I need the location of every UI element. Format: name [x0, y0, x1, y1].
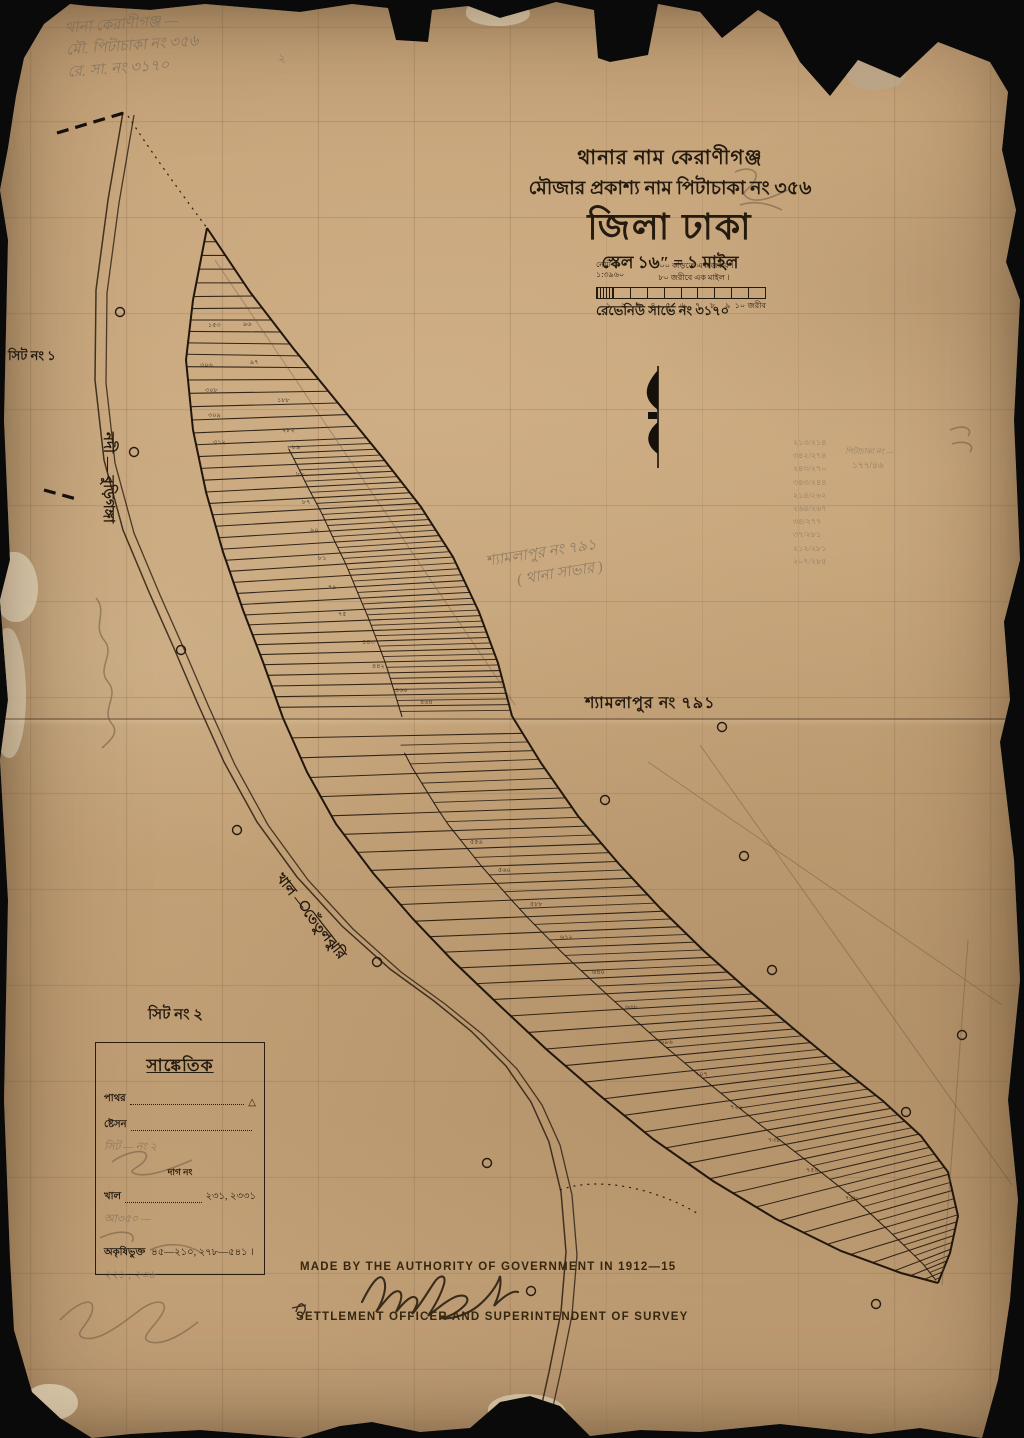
plot-number: ৪৪২ — [372, 661, 385, 672]
legend-value: ২৩১, ২৩৩১ — [206, 1189, 257, 1206]
pencil-fraction: ২৬৪/২৬৭ — [793, 504, 826, 513]
legend-label: অকৃষিভুক্ত — [104, 1245, 145, 1262]
pencil-scribble — [735, 169, 788, 200]
plot-number: ৮১ — [318, 553, 326, 564]
plot-subdivision-line — [338, 541, 443, 548]
plot-division-line — [260, 648, 492, 654]
plot-division-line — [192, 308, 262, 309]
plot-number: ৪৬০ — [395, 685, 408, 696]
plot-number: ৩০৬ — [200, 360, 213, 371]
plot-number: ৬৬৮ — [625, 1002, 638, 1013]
plot-number: ৬৯৬ — [660, 1037, 673, 1048]
plot-division-line — [310, 769, 545, 778]
scale-note-2: ৮০ জরীবে এক মাইল । — [622, 272, 766, 284]
officer-line: SETTLEMENT OFFICER AND SUPERINTENDENT OF… — [296, 1311, 688, 1323]
scale-notes: ১০০ কড়িতে এক জরীব । ৮০ জরীবে এক মাইল । — [622, 260, 766, 284]
signature — [362, 1276, 518, 1318]
plot-subdivision-line — [935, 1277, 940, 1279]
plot-division-line — [199, 449, 376, 456]
scale-unit-label: জরীব — [745, 300, 766, 313]
survey-station-circle — [301, 902, 310, 911]
scale-bar — [596, 287, 766, 299]
plot-subdivision-line — [475, 853, 610, 858]
plot-division-line — [344, 826, 587, 834]
plot-number: ৫৮৮ — [530, 899, 543, 910]
survey-station-circle — [483, 1159, 492, 1168]
plot-number: ৮৭ — [302, 497, 310, 508]
plot-subdivision-line — [353, 575, 461, 581]
pencil-scribble — [96, 598, 115, 748]
scale-bar-cell — [597, 288, 614, 298]
plot-division-line — [222, 536, 439, 550]
plot-division-line — [292, 733, 523, 738]
plot-division-line — [415, 911, 663, 921]
plot-division-line — [386, 878, 633, 887]
survey-station-circle — [373, 958, 382, 967]
plot-division-line — [779, 1174, 948, 1220]
plot-subdivision-line — [863, 1182, 950, 1206]
plot-strip-edge — [186, 228, 283, 718]
plot-subdivision-line — [813, 1141, 925, 1166]
pencil-fraction: ২১৩/২১৪ — [793, 438, 826, 447]
survey-station-circle — [768, 966, 777, 975]
scale-bar-cell — [715, 288, 732, 298]
plot-division-line — [644, 1095, 876, 1131]
pencil-line: মৌ. পিটাচাকা নং ৩৫৬ — [65, 31, 199, 62]
title-block: থানার নাম কেরাণীগঞ্জ মৌজার প্রকাশ্য নাম … — [520, 146, 820, 273]
plot-subdivision-line — [317, 498, 415, 503]
river-bank-line — [95, 112, 566, 1408]
sheet-1-label: সিট নং ১ — [8, 347, 56, 368]
pencil-fraction: ২১২/২৮১ — [793, 544, 826, 553]
legend-box: সাঙ্কেতিক পাথর △ ষ্টেসন সিট — নং ২ দাগ ন… — [95, 1042, 265, 1275]
scale-bar-cell — [732, 288, 749, 298]
plot-number: ১৮৮ — [277, 395, 290, 406]
plot-division-line — [275, 693, 506, 696]
neighbor-mouza-label: শ্যামলাপুর নং ৭৯১ — [585, 690, 715, 717]
plot-strip-edge — [283, 718, 938, 1283]
plot-subdivision-line — [847, 1167, 944, 1193]
north-arrow-flag — [648, 422, 658, 454]
for-mark — [292, 1304, 306, 1318]
plot-subdivision-line — [311, 487, 406, 492]
legend-value: ৪৫—২১০, ২৭৮—৫৪১ । — [151, 1245, 254, 1262]
plot-number: ৮৯ — [292, 442, 300, 453]
plot-subdivision-line — [534, 919, 671, 925]
plot-division-line — [253, 627, 485, 635]
legend-row-khal: খাল ২৩১, ২৩৩১ — [104, 1189, 256, 1206]
plot-strip-edge — [207, 228, 512, 716]
plot-subdivision-line — [305, 477, 397, 482]
survey-station-circle — [902, 1108, 911, 1117]
scale-line: স্কেল ১৬″ = ১ মাইল — [520, 252, 820, 273]
cadastral-map-drawing — [0, 0, 1024, 1438]
survey-station-circle — [177, 646, 186, 655]
pencil-fraction-header: পিটাচাকা নং — — [845, 446, 893, 459]
plot-division-line — [733, 1147, 930, 1193]
plot-division-line — [688, 1121, 905, 1163]
torn-patch — [26, 1384, 78, 1420]
survey-station-circle — [958, 1031, 967, 1040]
torn-patch — [0, 552, 38, 622]
district-line: জিলা ঢাকা — [520, 205, 820, 250]
plot-strip-edge — [512, 716, 958, 1283]
plot-subdivision-line — [915, 1242, 953, 1255]
plot-number: ২৮২ — [282, 425, 295, 436]
dashed-boundary-mark — [57, 112, 127, 133]
pencil-note-topleft: থানা কেরাণীগঞ্জ — মৌ. পিটাচাকা নং ৩৫৬ রে… — [64, 9, 201, 83]
plot-subdivision-line — [322, 509, 422, 515]
plot-division-line — [194, 426, 357, 433]
plot-division-line — [803, 1191, 952, 1233]
scanned-map-photo: থানার নাম কেরাণীগঞ্জ মৌজার প্রকাশ্য নাম … — [0, 0, 1024, 1438]
plot-division-line — [188, 379, 319, 380]
scale-bar-cell — [665, 288, 682, 298]
plot-number: ৭৩৮ — [768, 1135, 781, 1146]
plot-subdivision-line — [758, 1102, 884, 1123]
pencil-fraction: ২০৭/২৮৫ — [793, 557, 826, 566]
plot-division-line — [241, 592, 470, 604]
legend-label: পাথর — [104, 1091, 126, 1108]
tick: ৭ — [685, 300, 700, 313]
plot-number: ৭৫৪ — [806, 1165, 819, 1176]
plot-number: ৭৫ — [338, 609, 346, 620]
plot-division-line — [827, 1207, 956, 1245]
plot-subdivision-line — [343, 552, 449, 559]
plot-division-line — [493, 987, 744, 1000]
pencil-line: থানা কেরাণীগঞ্জ — — [64, 9, 198, 40]
scale-bar-cell — [749, 288, 765, 298]
plot-subdivision-line — [387, 665, 499, 667]
legend-row-stone: পাথর △ — [104, 1091, 256, 1108]
pencil-fraction: ৩৭/২৮১ — [793, 530, 826, 539]
plot-division-line — [230, 557, 453, 571]
torn-patch — [0, 628, 26, 758]
plot-number: ৯০ — [310, 525, 318, 536]
plot-subdivision-line — [924, 1255, 949, 1265]
pencil-scribble — [740, 203, 782, 210]
plot-division-line — [400, 895, 647, 905]
plot-division-line — [850, 1222, 956, 1255]
plot-division-line — [191, 403, 338, 407]
plot-subdivision-line — [362, 598, 472, 604]
scale-ticks: ১ ২ ৩ ৪ ৫ ৬ ৭ ৮ ৯ ১০ জরীব — [596, 300, 766, 313]
plot-subdivision-line — [401, 742, 528, 745]
pencil-scribble — [112, 1152, 192, 1175]
scale-bar-cell — [648, 288, 665, 298]
plot-division-line — [895, 1249, 951, 1271]
plot-division-line — [873, 1235, 954, 1262]
legend-row-nonagri: অকৃষিভুক্ত ৪৫—২১০, ২৭৮—৫৪১ । — [104, 1245, 256, 1262]
tick: ৮ — [700, 300, 715, 313]
pencil-scribble — [60, 1302, 198, 1343]
plot-subdivision-line — [333, 530, 436, 536]
plot-subdivision-line — [598, 979, 736, 986]
pencil-line: ( থানা সাভার ) — [515, 556, 604, 592]
plot-subdivision-line — [348, 563, 456, 570]
pencil-construction-line — [648, 762, 1002, 1005]
plot-number: ৫৬০ — [498, 865, 511, 876]
plot-number: ৯৭ — [250, 357, 258, 368]
tick: ৫ — [656, 300, 671, 313]
plot-division-line — [245, 604, 475, 615]
plot-subdivision-line — [795, 1128, 912, 1152]
pencil-fraction: ৩৪৩/২৪৪ — [793, 478, 826, 487]
pencil-fraction-column: ২১৩/২১৪৩৪২/২৭৪২৪৩/২৭০৩৪৩/২৪৪২১৪/২৬২২৬৪/২… — [793, 438, 826, 570]
plot-division-line — [233, 569, 458, 583]
plot-division-line — [249, 616, 481, 625]
made-by-line: MADE BY THE AUTHORITY OF GOVERNMENT IN 1… — [300, 1261, 676, 1273]
plot-subdivision-line — [446, 817, 579, 821]
plot-division-line — [272, 682, 503, 686]
plot-division-line — [371, 861, 617, 870]
plot-subdivision-line — [358, 586, 467, 592]
legend-dag-no: দাগ নং — [104, 1165, 256, 1180]
plot-subdivision-line — [397, 699, 508, 700]
plot-number: ৬৪০ — [592, 967, 605, 978]
river-name-label-upper: নদী — বুড়িগঙ্গা — [95, 432, 120, 523]
river-name-label-lower: খাল — তেঁতুলঝুরি — [269, 868, 352, 965]
plot-subdivision-line — [294, 455, 381, 459]
plot-number: ৩০৯ — [208, 410, 221, 421]
legend-pencil-sheet: সিট — নং ২ — [104, 1138, 256, 1157]
dotted-traverse-line — [560, 1184, 700, 1215]
plot-subdivision-line — [410, 759, 538, 764]
plot-division-line — [226, 546, 446, 560]
revenue-survey-number: রেভেনিউ সার্ভে নং ৩১৭০ — [596, 302, 729, 323]
survey-station-circle — [718, 723, 727, 732]
survey-station-circle — [130, 448, 139, 457]
plot-subdivision-line — [371, 621, 482, 625]
plot-subdivision-line — [379, 643, 491, 646]
pencil-stray-mark: ২ — [278, 50, 286, 70]
scale-rf: নোট ১:৩৯৬০ — [596, 260, 618, 281]
tick: ১ — [596, 300, 611, 313]
plot-number: ৩১২ — [213, 437, 226, 448]
plot-division-line — [331, 808, 572, 816]
plot-division-line — [430, 927, 679, 937]
pencil-scribble — [950, 427, 972, 452]
north-arrow-flag — [647, 370, 658, 410]
plot-number: ৬১২ — [560, 932, 573, 943]
plot-division-line — [194, 296, 253, 297]
plot-division-line — [189, 331, 280, 332]
scale-note-1: ১০০ কড়িতে এক জরীব । — [622, 260, 766, 272]
legend-row-station: ষ্টেসন — [104, 1117, 256, 1134]
plot-division-line — [201, 461, 385, 469]
plot-number: ৭০৭ — [695, 1069, 708, 1080]
plot-number: ৭৬৮ — [845, 1193, 858, 1204]
plot-subdivision-line — [400, 710, 510, 711]
plot-division-line — [565, 1043, 810, 1066]
plot-division-line — [924, 1272, 942, 1279]
pencil-scribble — [100, 1232, 200, 1252]
plot-subdivision-line — [615, 994, 753, 1001]
tick: ৪ — [641, 300, 656, 313]
plot-subdivision-line — [367, 610, 478, 615]
thana-name-line: থানার নাম কেরাণীগঞ্জ — [520, 146, 820, 171]
scale-bar-block: নোট ১:৩৯৬০ ১০০ কড়িতে এক জরীব । ৮০ জরীবে… — [596, 260, 766, 313]
plot-number: ৮৮ — [296, 469, 304, 480]
pencil-note-center: শ্যামলাপুর নং ৭৯১ ( থানা সাভার ) — [484, 533, 604, 595]
plot-division-line — [301, 751, 534, 758]
plot-subdivision-line — [893, 1215, 958, 1234]
pencil-fraction: ৩৪২/২৭৪ — [793, 451, 826, 460]
plot-division-line — [187, 354, 300, 356]
tape-mark — [846, 56, 906, 90]
plot-subdivision-line — [327, 520, 429, 526]
plot-subdivision-line — [878, 1199, 954, 1221]
pencil-construction-line — [700, 745, 1012, 1185]
plot-subdivision-line — [721, 1076, 852, 1093]
map-paper-sheet: থানার নাম কেরাণীগঞ্জ মৌজার প্রকাশ্য নাম … — [0, 0, 1024, 1438]
plot-division-line — [188, 343, 290, 344]
plot-division-line — [212, 503, 418, 514]
plot-subdivision-line — [434, 798, 566, 803]
tick: ৯ — [715, 300, 730, 313]
torn-patch — [488, 1394, 566, 1430]
plot-subdivision-line — [649, 1022, 786, 1032]
scale-bar-cell — [698, 288, 715, 298]
pencil-line: রে. সা. নং ৩১৭০ — [67, 53, 201, 84]
scale-rf-top: নোট — [596, 260, 618, 270]
dotted-traverse-line — [128, 116, 207, 228]
plot-subdivision-line — [830, 1154, 935, 1179]
dotted-leader — [130, 1103, 245, 1105]
plot-subdivision-line — [422, 778, 552, 783]
plot-number: ৪৪৩ — [362, 637, 375, 648]
plot-subdivision-line — [776, 1115, 898, 1137]
plot-subdivision-line — [299, 466, 389, 470]
plot-number: ১৫৩ — [208, 320, 221, 331]
pencil-fraction: ২১৪/২৬২ — [793, 491, 826, 500]
dotted-leader — [131, 1129, 252, 1131]
plot-subdivision-line — [383, 654, 495, 657]
legend-pencil-nums: ২২১ , ২৩৬ — [104, 1266, 256, 1285]
plot-number: ৪৬৪ — [420, 697, 433, 708]
survey-station-circle — [740, 852, 749, 861]
plot-division-line — [460, 957, 711, 967]
fold-shadow — [0, 720, 1024, 726]
dotted-leader — [125, 1201, 202, 1203]
plot-number: ৭৯ — [328, 582, 336, 593]
fold-line — [0, 718, 1024, 720]
north-arrow-tab — [648, 412, 657, 419]
legend-label: ষ্টেসন — [104, 1117, 127, 1134]
plot-subdivision-line — [930, 1266, 945, 1272]
plot-subdivision-line — [739, 1089, 868, 1108]
plot-division-line — [216, 514, 426, 526]
plot-subdivision-line — [703, 1063, 836, 1078]
pencil-fraction: ৩৪/২৭৭ — [793, 517, 826, 526]
river-bank-line — [106, 115, 577, 1411]
plot-number: ৯৬ — [243, 319, 251, 330]
tick: ২ — [611, 300, 626, 313]
plot-division-line — [219, 525, 432, 538]
survey-station-circle — [527, 1287, 536, 1296]
plot-division-line — [237, 581, 464, 594]
survey-station-circle — [601, 796, 610, 805]
pencil-construction-line — [942, 940, 968, 1285]
plot-division-line — [445, 942, 695, 952]
inner-boundary-line — [288, 449, 402, 717]
plot-division-line — [604, 1070, 844, 1099]
plot-subdivision-line — [375, 632, 486, 636]
plot-division-line — [911, 1261, 947, 1276]
plot-number: ৩০৮ — [205, 385, 218, 396]
survey-station-circle — [233, 826, 242, 835]
legend-pencil-a: আ৩৫০ — — [104, 1210, 256, 1229]
plot-division-line — [279, 705, 509, 708]
plot-subdivision-line — [904, 1229, 956, 1245]
torn-patch — [466, 0, 530, 26]
sheet-2-label: সিট নং ২ — [148, 1003, 203, 1028]
plot-subdivision-line — [390, 676, 501, 678]
plot-subdivision-line — [667, 1036, 803, 1048]
plot-division-line — [321, 788, 559, 797]
tick: ৬ — [671, 300, 686, 313]
tick: ১০ — [730, 300, 745, 313]
legend-header: সাঙ্কেতিক — [104, 1053, 256, 1081]
plot-division-line — [206, 482, 402, 492]
triangle-symbol: △ — [248, 1097, 256, 1108]
plot-subdivision-line — [685, 1049, 819, 1062]
legend-label: খাল — [104, 1189, 121, 1206]
mouza-name-line: মৌজার প্রকাশ্য নাম পিটাচাকা নং ৩৫৬ — [520, 177, 820, 201]
pencil-fraction-side: ১৭৭/৪৬ — [852, 458, 884, 473]
scale-bar-cell — [614, 288, 631, 298]
plot-number: ৫৫৬ — [470, 837, 483, 848]
scale-bar-cell — [631, 288, 648, 298]
survey-station-circle — [872, 1300, 881, 1309]
plot-subdivision-line — [565, 950, 703, 956]
pencil-fraction: ২৪৩/২৭০ — [793, 464, 826, 473]
plot-subdivision-line — [632, 1008, 769, 1017]
dashed-boundary-mark — [44, 490, 80, 500]
plot-number: ৭২২ — [730, 1102, 743, 1113]
plot-division-line — [528, 1015, 777, 1032]
tick: ৩ — [626, 300, 641, 313]
scale-rf-bottom: ১:৩৯৬০ — [596, 270, 618, 280]
plot-subdivision-line — [394, 688, 505, 690]
survey-station-circle — [116, 308, 125, 317]
plot-subdivision-line — [504, 887, 640, 892]
scale-bar-cell — [682, 288, 699, 298]
pencil-line: শ্যামলাপুর নং ৭৯১ — [484, 533, 601, 573]
